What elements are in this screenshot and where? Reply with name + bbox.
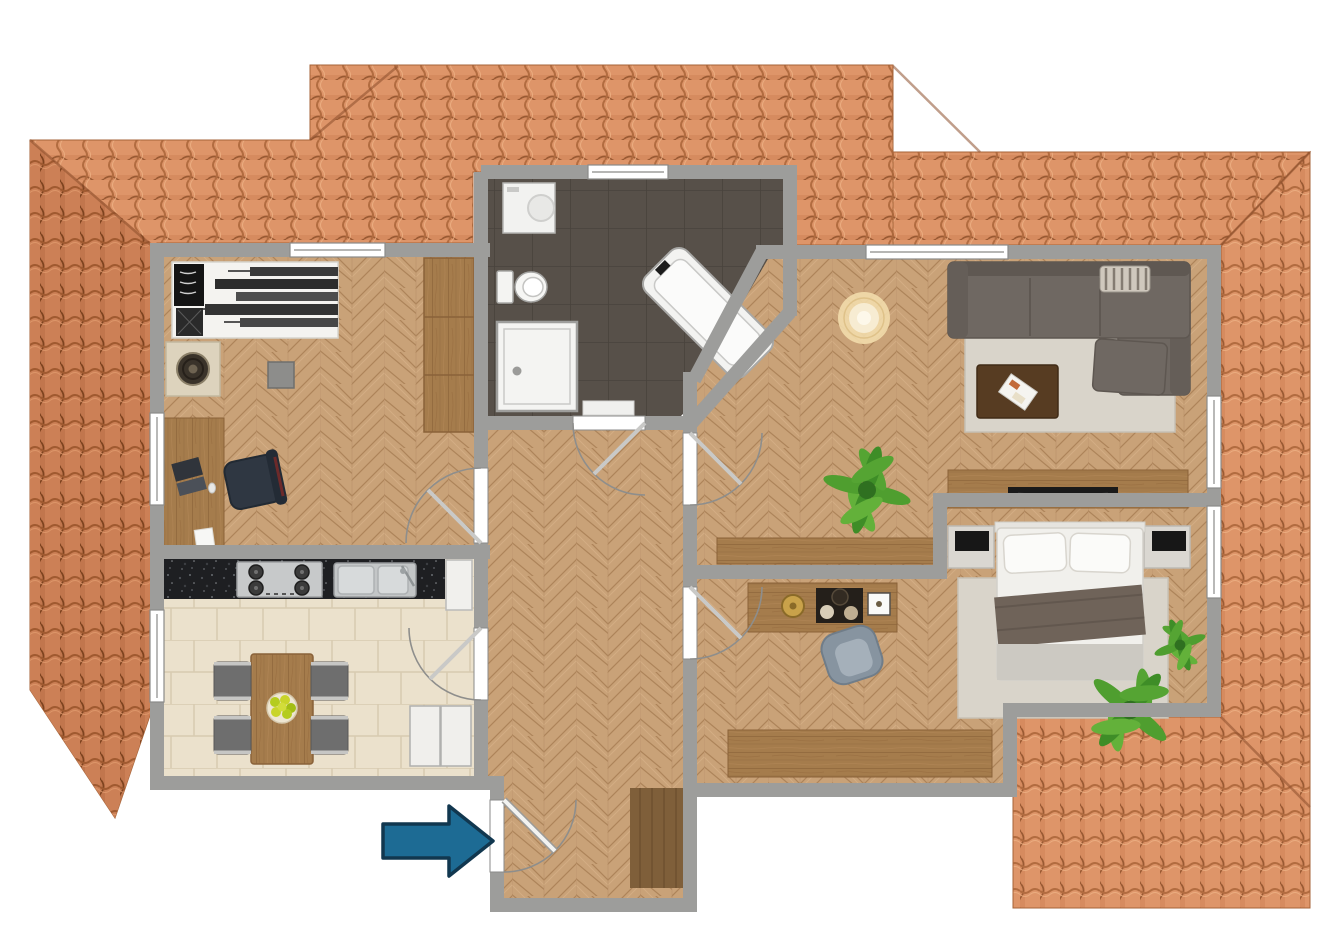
floor-lamp — [838, 292, 890, 344]
ottoman — [1092, 339, 1167, 396]
floor-plan-canvas — [0, 0, 1344, 951]
dressing-table — [748, 583, 897, 632]
coffee-table — [977, 365, 1058, 418]
window-living-right — [1207, 396, 1221, 488]
entrance-arrow — [383, 806, 493, 876]
chair — [214, 716, 251, 754]
window-office-left — [150, 413, 164, 505]
striped-cushion — [1100, 266, 1150, 292]
speaker-side-table — [166, 342, 220, 396]
roof-left-slope — [30, 140, 155, 818]
window-living-top — [866, 245, 1008, 259]
bedroom-sideboard — [728, 730, 992, 777]
window-office-top — [290, 243, 385, 257]
chair — [311, 716, 348, 754]
chair — [214, 662, 251, 700]
shower — [497, 322, 577, 411]
nightstand-left — [948, 526, 994, 568]
entry-mat — [630, 788, 683, 888]
living-sideboard — [717, 538, 940, 564]
wardrobe — [424, 258, 474, 432]
double-sink — [334, 563, 416, 597]
toilet — [497, 271, 547, 303]
fridge — [446, 560, 472, 610]
decor-tray — [816, 588, 863, 623]
foot-blanket — [997, 644, 1143, 680]
window-kitchen-left — [150, 610, 164, 702]
black-pillow — [174, 264, 204, 306]
base-cabinets — [410, 706, 471, 766]
shower-drain — [513, 367, 522, 376]
double-bed — [994, 522, 1146, 680]
tv — [1008, 487, 1118, 493]
nightstand-right — [1144, 526, 1190, 568]
single-bed — [172, 262, 338, 338]
chair — [311, 662, 348, 700]
mouse — [209, 483, 216, 493]
window-bedroom-right — [1207, 506, 1221, 598]
washing-machine — [503, 183, 555, 233]
gas-stove — [237, 562, 322, 597]
floor-plan-page — [0, 0, 1344, 951]
bath-mat — [583, 401, 634, 415]
wall-stool — [268, 362, 294, 388]
room-hallway — [630, 788, 683, 888]
window-bathroom-top — [588, 165, 668, 179]
dining-table — [251, 654, 313, 764]
